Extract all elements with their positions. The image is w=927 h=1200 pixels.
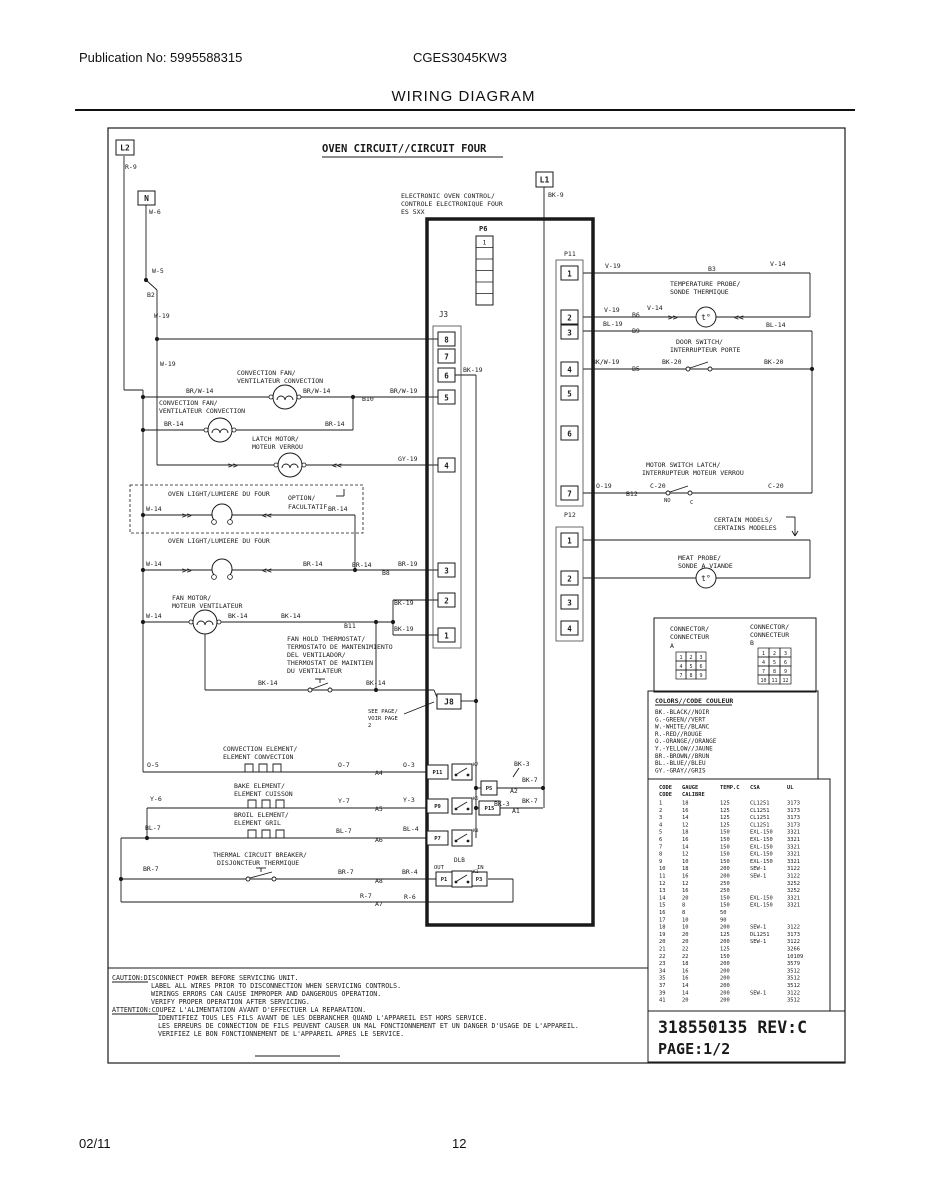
table-cell: SEW-1	[750, 874, 766, 880]
table-cell: 3252	[787, 881, 800, 887]
label-text: CONTROLE ELECTRONIQUE FOUR	[401, 200, 503, 208]
pin-number: 4	[567, 625, 572, 634]
label-text: INTERRUPTEUR MOTEUR VERROU	[642, 469, 744, 477]
legend-grid-number: 3	[784, 651, 787, 657]
label-text: CONNECTOR/	[750, 623, 789, 631]
label-text: BK-14	[228, 612, 248, 620]
table-cell: 125	[720, 932, 730, 938]
table-cell: 3122	[787, 874, 800, 880]
legend-grid-number: 8	[773, 669, 776, 675]
junction-dot	[351, 395, 355, 399]
lamp-symbol	[212, 504, 232, 520]
table-cell: 18	[659, 925, 666, 931]
table-cell: 3	[659, 815, 662, 821]
label-text: BK-19	[394, 599, 414, 607]
junction-dot	[374, 688, 378, 692]
label-text: DEL VENTILADOR/	[287, 651, 346, 659]
pin-number: 2	[567, 575, 572, 584]
table-cell: 125	[720, 947, 730, 953]
table-cell: 20	[682, 932, 689, 938]
node-box-label: L1	[540, 176, 550, 185]
label-text: CERTAIN MODELS/	[714, 516, 773, 524]
label-text: BK-3	[494, 800, 510, 808]
legend-grid-number: 5	[689, 664, 692, 670]
legend-grid-number: 7	[762, 669, 765, 675]
relay-box	[452, 830, 472, 846]
wire-line	[146, 280, 157, 290]
p6-pin-number: 1	[483, 239, 487, 247]
label-text: OPTION/	[288, 494, 315, 502]
element-resistor-symbol	[243, 800, 288, 808]
label-text: R-9	[125, 163, 137, 171]
caution-line: IDENTIFIEZ TOUS LES FILS AVANT DE LES DE…	[158, 1014, 488, 1022]
label-text: ELEMENT CUISSON	[234, 790, 293, 798]
label-text: INTERRUPTEUR PORTE	[670, 346, 741, 354]
junction-dot	[144, 278, 148, 282]
table-cell: 3266	[787, 947, 800, 953]
relay-contact	[467, 840, 470, 843]
switch-contact	[686, 367, 690, 371]
table-cell: 3252	[787, 888, 800, 894]
legend-grid-number: 10	[760, 678, 766, 684]
relay-box	[452, 764, 472, 780]
table-cell: 3321	[787, 895, 800, 901]
probe-symbol-label: t°	[701, 313, 711, 322]
table-cell: 200	[720, 874, 730, 880]
label-text: BL-7	[336, 827, 352, 835]
legend-grid-number: 4	[679, 664, 682, 670]
pin-number: 3	[567, 329, 572, 338]
junction-dot	[141, 395, 145, 399]
label-text: A8	[375, 877, 383, 885]
label-text: CONVECTION FAN/	[159, 399, 218, 407]
label-text: OUT	[434, 865, 445, 871]
pin-number: 8	[444, 336, 449, 345]
table-header: CSA	[750, 785, 760, 791]
table-cell: 3122	[787, 990, 800, 996]
table-cell: 150	[720, 903, 730, 909]
color-code-entry: W.-WHITE//BLANC	[655, 724, 710, 731]
label-text: J3	[439, 310, 448, 319]
motor-symbol	[193, 610, 217, 634]
junction-dot	[474, 806, 478, 810]
label-text: BROIL ELEMENT/	[234, 811, 289, 819]
label-text: W-14	[146, 505, 162, 513]
table-cell: 20	[659, 939, 666, 945]
pin-number: 3	[444, 567, 449, 576]
label-text: BK/W-19	[592, 358, 619, 366]
label-text: FAN MOTOR/	[172, 594, 211, 602]
junction-dot	[141, 568, 145, 572]
table-cell: 10	[659, 866, 666, 872]
table-cell: 16	[682, 976, 689, 982]
label-text: BL-14	[766, 321, 786, 329]
table-cell: 16	[682, 888, 689, 894]
junction-dot	[541, 786, 545, 790]
switch-contact	[666, 491, 670, 495]
caution-line: ATTENTION:COUPEZ L'ALIMENTATION AVANT D'…	[112, 1006, 366, 1014]
table-cell: CL1251	[750, 815, 769, 821]
label-text: BR-14	[164, 420, 184, 428]
node-box-label: J8	[444, 698, 454, 707]
node-box-label: L2	[120, 144, 130, 153]
label-text: VOIR PAGE	[368, 716, 398, 722]
diagram-title: OVEN CIRCUIT//CIRCUIT FOUR	[322, 143, 487, 155]
table-cell: 16	[682, 874, 689, 880]
table-cell: 2	[659, 808, 662, 814]
switch-contact	[688, 491, 692, 495]
relay-contact	[455, 840, 458, 843]
label-text: R-6	[404, 893, 416, 901]
legend-grid-number: 9	[784, 669, 787, 675]
relay-box	[452, 871, 472, 887]
relay-label: K8	[473, 828, 479, 834]
pin-number: 4	[567, 366, 572, 375]
label-text: R-7	[360, 892, 372, 900]
label-text: B3	[708, 265, 716, 273]
label-text: ELEMENT CONVECTION	[223, 753, 294, 761]
motor-terminal	[297, 395, 301, 399]
label-text: BL-19	[603, 320, 623, 328]
switch-contact	[272, 877, 276, 881]
table-cell: 3173	[787, 801, 800, 807]
table-cell: 20	[682, 998, 689, 1004]
table-cell: 3173	[787, 808, 800, 814]
table-cell: 3579	[787, 961, 800, 967]
label-text: A	[670, 642, 674, 650]
table-cell: 14	[682, 983, 689, 989]
label-text: LATCH MOTOR/	[252, 435, 299, 443]
label-text: SONDE THERMIQUE	[670, 288, 729, 296]
label-text: BR-14	[352, 561, 372, 569]
label-text: C	[690, 500, 693, 506]
lamp-terminal	[228, 520, 233, 525]
footer-date: 02/11	[79, 1136, 111, 1151]
pin-number: 5	[444, 394, 449, 403]
label-text: FAN HOLD THERMOSTAT/	[287, 635, 365, 643]
switch-blade	[312, 683, 328, 689]
label-text: MOTOR SWITCH LATCH/	[646, 461, 720, 469]
legend-grid-number: 3	[699, 655, 702, 661]
footer-page-number: 12	[452, 1136, 466, 1151]
label-text: BL-4	[403, 825, 419, 833]
table-cell: CL1251	[750, 801, 769, 807]
table-cell: 12	[682, 881, 689, 887]
table-cell: SEW-1	[750, 990, 766, 996]
relay-contact	[467, 881, 470, 884]
caution-line: LES ERREURS DE CONNECTION DE FILS PEUVEN…	[158, 1022, 579, 1030]
table-cell: 3122	[787, 866, 800, 872]
table-cell: 16	[682, 808, 689, 814]
table-cell: 14	[682, 815, 689, 821]
label-text: BR/W-19	[390, 387, 417, 395]
motor-symbol	[208, 418, 232, 442]
table-cell: 3512	[787, 983, 800, 989]
label-text: W-19	[154, 312, 170, 320]
legend-grid-number: 4	[762, 660, 765, 666]
label-text: O-5	[147, 761, 159, 769]
pin-number: 3	[567, 599, 572, 608]
table-cell: SEW-1	[750, 939, 766, 945]
pin-number: 4	[444, 462, 449, 471]
lamp-terminal	[228, 575, 233, 580]
label-text: VENTILATEUR CONVECTION	[237, 377, 323, 385]
pin-number: 6	[567, 430, 572, 439]
table-cell: 14	[682, 990, 689, 996]
table-cell: 1	[659, 801, 662, 807]
table-cell: EXL-150	[750, 837, 773, 843]
color-code-entry: BL.-BLUE//BLEU	[655, 760, 706, 767]
label-text: CONVECTION FAN/	[237, 369, 296, 377]
label-text: MOTEUR VENTILATEUR	[172, 602, 243, 610]
caution-line: WIRINGS ERRORS CAN CAUSE IMPROPER AND DA…	[151, 990, 381, 998]
table-cell: 3122	[787, 925, 800, 931]
motor-terminal	[204, 428, 208, 432]
element-resistor-symbol	[240, 764, 285, 772]
table-cell: 20	[682, 895, 689, 901]
document-page: Publication No: 5995588315 CGES3045KW3 W…	[0, 0, 927, 1200]
table-cell: CL1251	[750, 808, 769, 814]
table-cell: 19	[659, 932, 666, 938]
label-text: DLB	[454, 857, 465, 864]
node-box-label: P11	[433, 770, 444, 776]
label-text: 2	[368, 723, 371, 729]
relay-contact	[467, 774, 470, 777]
label-text: TERMOSTATO DE MANTENIMIENTO	[287, 643, 393, 651]
connector-chevron: <<	[734, 313, 744, 322]
label-text: A5	[375, 805, 383, 813]
color-code-entry: R.-RED//ROUGE	[655, 731, 702, 738]
label-text: BK-3	[514, 760, 530, 768]
table-cell: 16	[682, 837, 689, 843]
table-cell: 200	[720, 998, 730, 1004]
table-cell: 150	[720, 859, 730, 865]
label-text: SONDE A VIANDE	[678, 562, 733, 570]
probe-symbol-label: t°	[701, 574, 711, 583]
table-cell: EXL-150	[750, 903, 773, 909]
wire-line	[513, 768, 519, 777]
table-cell: 8	[659, 852, 662, 858]
table-cell: 15	[659, 903, 666, 909]
label-text: C-20	[768, 482, 784, 490]
table-cell: 200	[720, 925, 730, 931]
connector-chevron: >>	[228, 461, 238, 470]
label-text: B5	[632, 365, 640, 373]
connector-outline	[556, 260, 583, 506]
junction-dot	[474, 699, 478, 703]
table-cell: 3321	[787, 830, 800, 836]
label-text: P11	[564, 250, 576, 258]
table-cell: 50	[720, 910, 727, 916]
legend-grid-number: 6	[699, 664, 702, 670]
label-text: BR-19	[398, 560, 418, 568]
legend-grid-number: 8	[689, 673, 692, 679]
table-cell: 22	[659, 954, 666, 960]
pin-number: 7	[567, 490, 572, 499]
table-cell: 3512	[787, 998, 800, 1004]
node-box-label: N	[144, 194, 149, 203]
switch-contact	[328, 688, 332, 692]
label-text: B8	[382, 569, 390, 577]
relay-label: K5	[473, 796, 479, 802]
label-text: TEMPERATURE PROBE/	[670, 280, 741, 288]
table-cell: 35	[659, 976, 666, 982]
color-code-entry: BR.-BROWN//BRUN	[655, 753, 710, 760]
color-code-entry: BK.-BLACK//NOIR	[655, 709, 710, 716]
legend-grid-number: 5	[773, 660, 776, 666]
legend-grid-number: 7	[679, 673, 682, 679]
table-cell: 12	[659, 881, 666, 887]
label-text: V-19	[604, 306, 620, 314]
connector-chevron: <<	[262, 511, 272, 520]
table-cell: EXL-150	[750, 852, 773, 858]
label-text: OVEN LIGHT/LUMIERE DU FOUR	[168, 490, 270, 498]
junction-dot	[155, 337, 159, 341]
table-cell: 3321	[787, 903, 800, 909]
label-text: V-14	[770, 260, 786, 268]
color-code-entry: Y.-YELLOW//JAUNE	[655, 746, 713, 753]
table-cell: 7	[659, 844, 662, 850]
junction-dot	[141, 428, 145, 432]
label-text: Y-6	[150, 795, 162, 803]
relay-label: K7	[473, 762, 479, 768]
label-text: BR-7	[143, 865, 159, 873]
table-cell: 41	[659, 998, 666, 1004]
table-cell: 16	[659, 910, 666, 916]
table-cell: 12	[682, 822, 689, 828]
label-text: B	[750, 639, 754, 647]
table-cell: 3173	[787, 932, 800, 938]
table-cell: 13	[659, 888, 666, 894]
relay-contact	[455, 774, 458, 777]
motor-terminal	[217, 620, 221, 624]
label-text: Y-3	[403, 796, 415, 804]
motor-symbol	[273, 385, 297, 409]
table-cell: 250	[720, 881, 730, 887]
junction-dot	[810, 367, 814, 371]
switch-contact	[308, 688, 312, 692]
pin-number: 1	[567, 270, 572, 279]
legend-grid-number: 11	[771, 678, 777, 684]
label-text: W-5	[152, 267, 164, 275]
label-text: B11	[344, 622, 356, 630]
connector-chevron: >>	[668, 313, 678, 322]
table-cell: SEW-1	[750, 925, 766, 931]
label-text: BK-20	[662, 358, 682, 366]
label-text: BR/W-14	[186, 387, 213, 395]
legend-grid-number: 2	[689, 655, 692, 661]
table-cell: SEW-1	[750, 866, 766, 872]
label-text: VENTILATEUR CONVECTION	[159, 407, 245, 415]
label-text: BK-19	[394, 625, 414, 633]
table-cell: CL1251	[750, 822, 769, 828]
motor-terminal	[189, 620, 193, 624]
table-cell: 16	[682, 968, 689, 974]
table-cell: 125	[720, 801, 730, 807]
motor-terminal	[302, 463, 306, 467]
legend-grid-number: 1	[762, 651, 765, 657]
table-cell: 34	[659, 968, 666, 974]
table-cell: DL1251	[750, 932, 769, 938]
pin-number: 7	[444, 353, 449, 362]
table-cell: 12	[682, 852, 689, 858]
junction-dot	[141, 513, 145, 517]
label-text: BR-7	[338, 868, 354, 876]
label-text: CERTAINS MODELES	[714, 524, 777, 532]
legend-grid-number: 9	[699, 673, 702, 679]
caution-line: VERIFIEZ LE BON FONCTIONNEMENT DE L'APPA…	[158, 1030, 404, 1038]
label-text: SEE PAGE/	[368, 709, 398, 715]
table-cell: 200	[720, 939, 730, 945]
table-cell: 150	[720, 830, 730, 836]
switch-blade	[690, 362, 708, 368]
label-text: BK-9	[548, 191, 564, 199]
node-box-label: P15	[485, 806, 495, 812]
legend-grid-number: 1	[679, 655, 682, 661]
junction-dot	[474, 786, 478, 790]
label-text: Y-7	[338, 797, 350, 805]
table-cell: 150	[720, 954, 730, 960]
label-text: A2	[510, 787, 518, 795]
label-text: W-14	[146, 612, 162, 620]
table-cell: 90	[720, 917, 727, 923]
table-cell: 5	[659, 830, 662, 836]
label-text: C-20	[650, 482, 666, 490]
table-cell: 3512	[787, 976, 800, 982]
label-text: A4	[375, 769, 383, 777]
label-text: BAKE ELEMENT/	[234, 782, 285, 790]
junction-dot	[141, 620, 145, 624]
table-cell: 4	[659, 822, 662, 828]
motor-terminal	[274, 463, 278, 467]
legend-grid-number: 2	[773, 651, 776, 657]
table-cell: 200	[720, 961, 730, 967]
junction-dot	[391, 620, 395, 624]
table-cell: 125	[720, 815, 730, 821]
node-box-label: P9	[434, 804, 441, 810]
table-cell: 200	[720, 866, 730, 872]
table-cell: 14	[682, 844, 689, 850]
caution-line: CAUTION:DISCONNECT POWER BEFORE SERVICIN…	[112, 974, 299, 982]
label-text: THERMAL CIRCUIT BREAKER/	[213, 851, 307, 859]
node-box-label: P7	[434, 836, 441, 842]
table-cell: 18	[682, 866, 689, 872]
label-text: B9	[632, 327, 640, 335]
label-text: A7	[375, 900, 383, 908]
label-text: BK-20	[764, 358, 784, 366]
label-text: CONNECTEUR	[670, 633, 709, 641]
table-cell: EXL-150	[750, 830, 773, 836]
label-text: V-14	[647, 304, 663, 312]
label-text: CONNECTEUR	[750, 631, 789, 639]
wiring-diagram-canvas: t°t°>><<>><<>><<>><<L2NL1J8P11P9P7P1P3P5…	[0, 0, 927, 1200]
label-text: THERMOSTAT DE MAINTIEN	[287, 659, 373, 667]
colors-legend-title: COLORS//CODE COULEUR	[655, 697, 733, 705]
label-text: MOTEUR VERROU	[252, 443, 303, 451]
label-text: OVEN LIGHT/LUMIERE DU FOUR	[168, 537, 270, 545]
label-text: P12	[564, 511, 576, 519]
table-cell: 21	[659, 947, 666, 953]
table-cell: 3321	[787, 844, 800, 850]
table-cell: 125	[720, 822, 730, 828]
label-text: W-14	[146, 560, 162, 568]
caution-line: VERIFY PROPER OPERATION AFTER SERVICING.	[151, 998, 310, 1006]
part-number: 318550135 REV:C	[658, 1018, 807, 1037]
node-box-label: P1	[441, 877, 448, 883]
connector-chevron: <<	[332, 461, 342, 470]
page-indicator: PAGE:1/2	[658, 1040, 730, 1058]
label-text: DISJONCTEUR THERMIQUE	[217, 859, 299, 867]
